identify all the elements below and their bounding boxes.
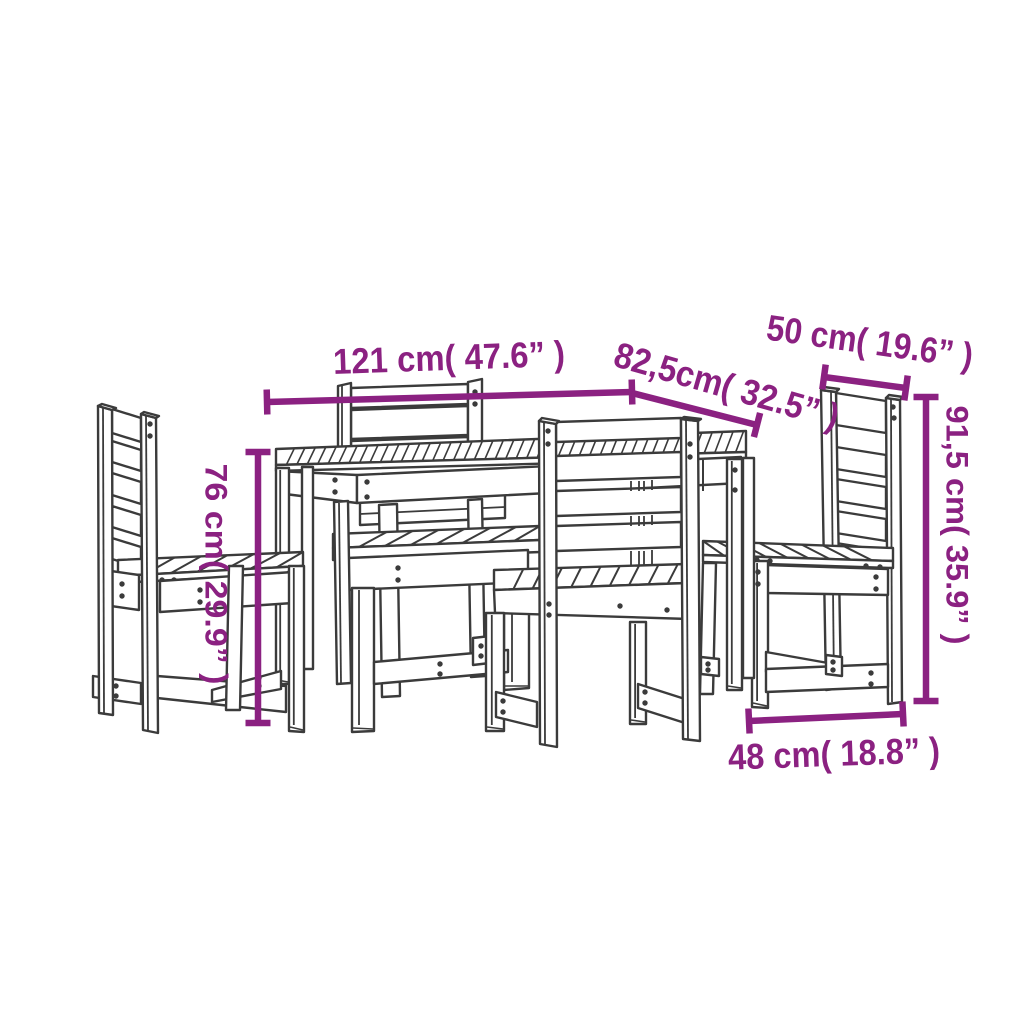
svg-text:91,5 cm( 35.9” ): 91,5 cm( 35.9” ) xyxy=(940,406,976,645)
svg-text:76 cm( 29.9” ): 76 cm( 29.9” ) xyxy=(199,464,235,685)
svg-text:121 cm( 47.6” ): 121 cm( 47.6” ) xyxy=(332,333,565,382)
svg-text:48 cm( 18.8” ): 48 cm( 18.8” ) xyxy=(727,729,940,777)
